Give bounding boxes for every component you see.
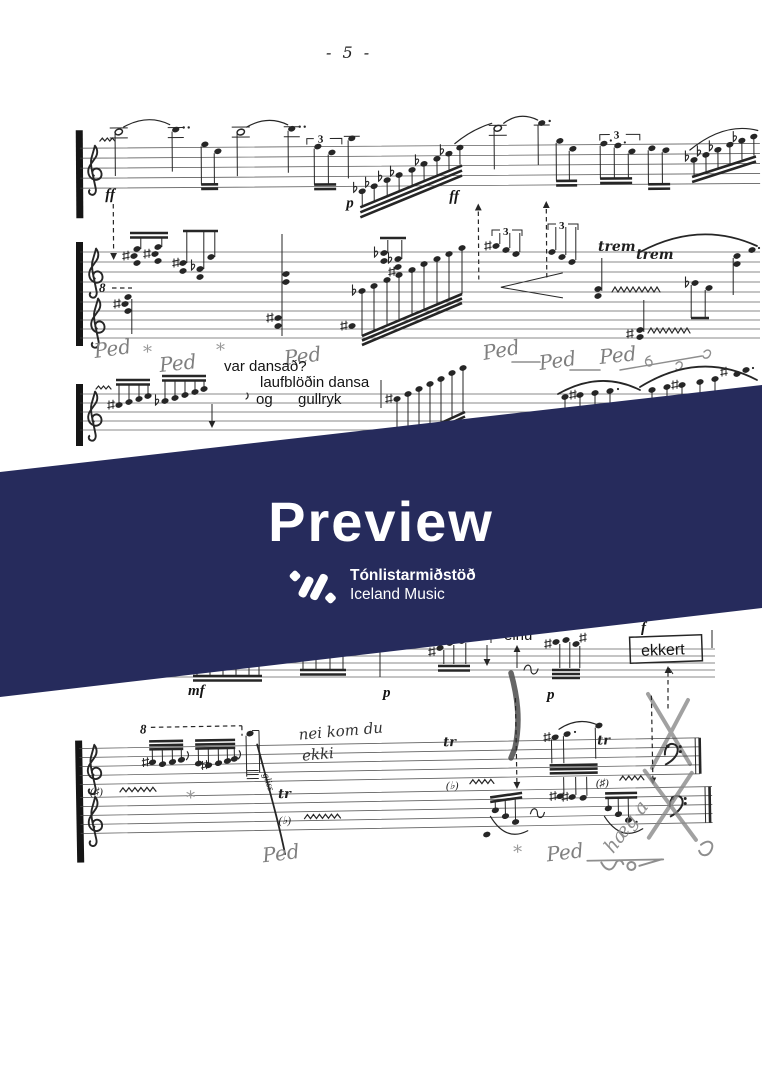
pedal-release-star: *: [186, 788, 195, 809]
handwritten-ped: Ped: [157, 349, 198, 377]
tremolo-mark: trem: [598, 239, 636, 255]
music-system-2: 8: [76, 220, 760, 377]
dynamic-mark: ff: [105, 187, 117, 203]
lyric-word-gullryk: gullryk: [298, 391, 342, 408]
dynamic-mark: p: [545, 687, 555, 703]
parenthesized-accidental: (♯): [90, 786, 103, 798]
tremolo-mark: trem: [636, 247, 674, 263]
tuplet-number: 3: [503, 226, 509, 238]
gliss-mark: gliss: [260, 772, 276, 793]
handwritten-ped: Ped: [260, 839, 301, 867]
trill-mark: tr: [278, 787, 292, 802]
lyric-word-og: og: [256, 391, 273, 408]
dynamic-mark: p: [381, 685, 391, 701]
iceland-music-brand: Tónlistarmiðstöð Iceland Music: [289, 567, 476, 607]
handwritten-ped: Ped: [91, 334, 132, 363]
brand-name: Tónlistarmiðstöð: [350, 567, 476, 586]
dynamic-mark: f: [641, 620, 648, 636]
pedal-release-star: *: [143, 342, 152, 363]
iceland-music-logo-icon: [289, 567, 336, 607]
tuplet-number: 3: [614, 129, 620, 141]
parenthesized-accidental: (♯): [596, 777, 609, 789]
handwritten-ped: Ped: [480, 335, 522, 365]
parenthesized-accidental: (♭): [446, 780, 459, 792]
printed-lyrics: var dansað? laufblöðin dansa og gullryk: [224, 358, 381, 408]
dynamic-mark: p: [344, 195, 354, 211]
trill-mark: tr: [597, 733, 611, 748]
tuplet-number: 3: [318, 134, 324, 146]
trill-mark: tr: [443, 735, 457, 750]
annotation-ekkert: ekkert: [641, 641, 686, 660]
ottava-mark: 8: [99, 280, 106, 295]
music-system-1: 3 3: [76, 115, 761, 302]
dynamic-mark: mf: [188, 683, 207, 699]
handwritten-ped: Ped: [597, 341, 638, 369]
dynamic-mark: ff: [449, 189, 461, 205]
parenthesized-accidental: (♭): [278, 815, 291, 827]
handwritten-note-line2: ekki: [301, 744, 335, 765]
handwritten-ped: Ped: [544, 838, 585, 866]
pedal-release-star: *: [513, 842, 522, 863]
handwritten-haeg: hæg a: [600, 796, 653, 857]
ottava-mark: 8: [140, 721, 147, 736]
tuplet-number: 3: [559, 220, 565, 232]
handwritten-note-line1: nei kom du: [298, 718, 384, 743]
lyric-line-2: laufblöðin dansa: [260, 374, 370, 391]
music-system-5: 8 gliss (♯) tr (♭) tr (♭) tr: [74, 695, 713, 880]
lyric-line-1: var dansað?: [224, 358, 307, 375]
brand-subtitle: Iceland Music: [350, 586, 476, 605]
preview-watermark-text: Preview: [0, 494, 762, 550]
page-number: - 5 -: [326, 43, 372, 62]
scanned-sheet-music-page: - 5 - 3: [0, 0, 762, 1080]
